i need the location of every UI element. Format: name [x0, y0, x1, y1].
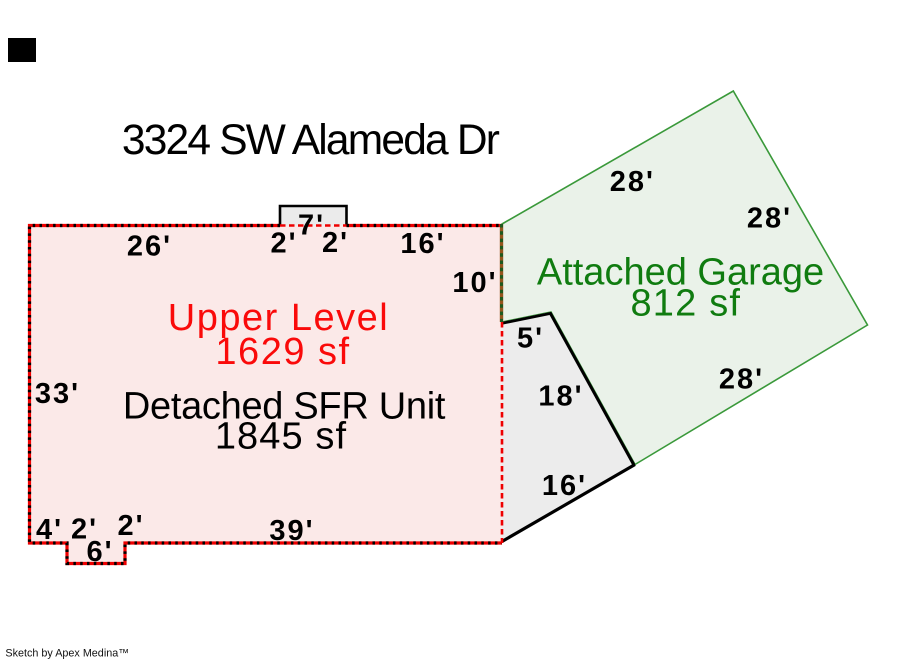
- svg-text:2': 2': [322, 227, 349, 259]
- svg-text:28': 28': [747, 203, 792, 235]
- svg-text:1845 sf: 1845 sf: [215, 416, 347, 458]
- svg-text:10': 10': [452, 267, 497, 299]
- svg-text:812 sf: 812 sf: [630, 283, 741, 325]
- svg-text:16': 16': [400, 228, 445, 260]
- svg-text:7': 7': [298, 210, 325, 242]
- svg-text:28': 28': [719, 364, 764, 396]
- svg-text:5': 5': [517, 323, 544, 355]
- svg-text:26': 26': [127, 231, 172, 263]
- svg-text:33': 33': [35, 378, 80, 410]
- svg-text:2': 2': [117, 510, 144, 542]
- svg-text:Sketch by Apex Medina™: Sketch by Apex Medina™: [5, 648, 129, 660]
- svg-text:3324 SW Alameda Dr: 3324 SW Alameda Dr: [122, 117, 500, 164]
- svg-text:4': 4': [36, 514, 63, 546]
- svg-text:6': 6': [86, 536, 113, 568]
- svg-text:2': 2': [270, 228, 297, 260]
- svg-text:28': 28': [610, 166, 655, 198]
- svg-text:39': 39': [269, 515, 314, 547]
- svg-text:18': 18': [538, 380, 583, 412]
- svg-text:16': 16': [542, 470, 587, 502]
- svg-text:1629 sf: 1629 sf: [215, 331, 350, 373]
